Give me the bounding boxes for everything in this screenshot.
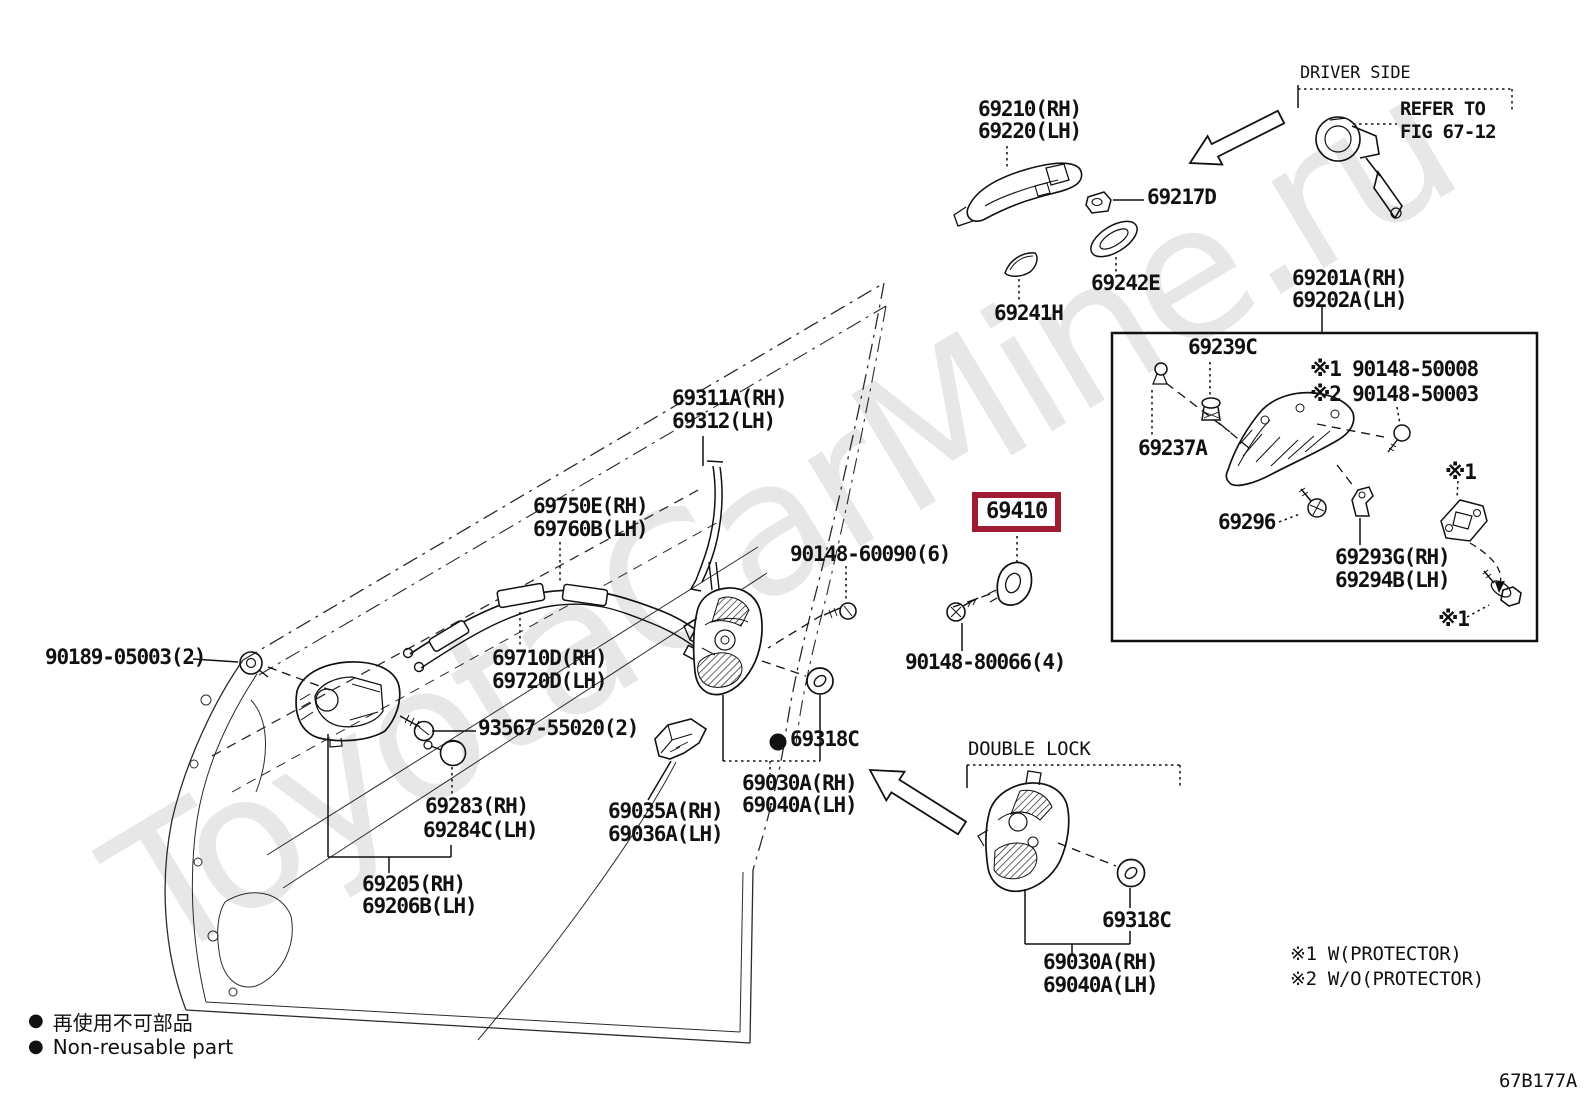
label-69318c-main: 69318C: [790, 728, 859, 750]
label-69318c-double-lock: 69318C: [1102, 909, 1171, 931]
label-69210-rh: 69210(RH): [978, 98, 1081, 120]
label-69311a-rh: 69311A(RH): [672, 387, 786, 409]
label-69040a-lh-main: 69040A(LH): [742, 794, 856, 816]
label-note1-upper: ※1: [1445, 461, 1476, 483]
label-90148-50008: ※1 90148-50008: [1310, 358, 1478, 380]
labels-layer: 69210(RH)69220(LH)DRIVER SIDEREFER TOFIG…: [0, 0, 1592, 1099]
label-69242e: 69242E: [1091, 272, 1160, 294]
label-93567-55020: 93567-55020(2): [478, 717, 638, 739]
label-note-protector-1: ※1 W(PROTECTOR): [1290, 944, 1462, 965]
label-refer-to: REFER TO: [1400, 99, 1485, 120]
label-driver-side: DRIVER SIDE: [1300, 64, 1410, 83]
label-69202a-lh: 69202A(LH): [1292, 289, 1406, 311]
label-69036a-lh: 69036A(LH): [608, 823, 722, 845]
label-69237a: 69237A: [1138, 437, 1207, 459]
legend-text-jp: 再使用不可部品: [53, 1007, 193, 1036]
legend-text-en: Non-reusable part: [53, 1035, 233, 1059]
label-fig-67-12: FIG 67-12: [1400, 122, 1496, 143]
highlighted-part-label: 69410: [972, 492, 1061, 532]
label-69206b-lh: 69206B(LH): [362, 895, 476, 917]
label-69283-rh: 69283(RH): [425, 795, 528, 817]
legend-row-en: ● Non-reusable part: [28, 1034, 233, 1060]
label-figure-code: 67B177A: [1499, 1071, 1577, 1092]
label-69030a-rh-double-lock: 69030A(RH): [1043, 951, 1157, 973]
label-69760b-lh: 69760B(LH): [533, 518, 647, 540]
label-69750e-rh: 69750E(RH): [533, 495, 647, 517]
toyota-parts-diagram: ToyotaCarMine.ru: [0, 0, 1592, 1099]
label-69294b-lh: 69294B(LH): [1335, 569, 1449, 591]
label-69205-rh: 69205(RH): [362, 873, 465, 895]
label-90148-80066: 90148-80066(4): [905, 651, 1065, 673]
label-note-protector-2: ※2 W/O(PROTECTOR): [1290, 969, 1484, 990]
label-69030a-rh-main: 69030A(RH): [742, 772, 856, 794]
label-69284c-lh: 69284C(LH): [423, 819, 537, 841]
label-69241h: 69241H: [994, 302, 1063, 324]
label-69220-lh: 69220(LH): [978, 120, 1081, 142]
label-69312-lh: 69312(LH): [672, 410, 775, 432]
label-69720d-lh: 69720D(LH): [492, 670, 606, 692]
label-90148-60090: 90148-60090(6): [790, 543, 950, 565]
label-double-lock: DOUBLE LOCK: [968, 739, 1091, 760]
label-90189-05003: 90189-05003(2): [45, 646, 205, 668]
filled-circle-icon: ●: [28, 1038, 44, 1056]
label-69293g-rh: 69293G(RH): [1335, 546, 1449, 568]
label-90148-50003: ※2 90148-50003: [1310, 383, 1478, 405]
label-69040a-lh-double-lock: 69040A(LH): [1043, 974, 1157, 996]
label-69710d-rh: 69710D(RH): [492, 647, 606, 669]
label-note1-lower: ※1: [1438, 608, 1469, 630]
label-69296: 69296: [1218, 511, 1275, 533]
label-69217d: 69217D: [1147, 186, 1216, 208]
legend-row-jp: ● 再使用不可部品: [28, 1008, 233, 1034]
label-69201a-rh: 69201A(RH): [1292, 267, 1406, 289]
label-69239c: 69239C: [1188, 336, 1257, 358]
filled-circle-icon: ●: [28, 1012, 44, 1030]
non-reusable-legend: ● 再使用不可部品 ● Non-reusable part: [28, 1008, 233, 1060]
highlighted-part-number: 69410: [986, 499, 1047, 524]
label-69035a-rh: 69035A(RH): [608, 800, 722, 822]
